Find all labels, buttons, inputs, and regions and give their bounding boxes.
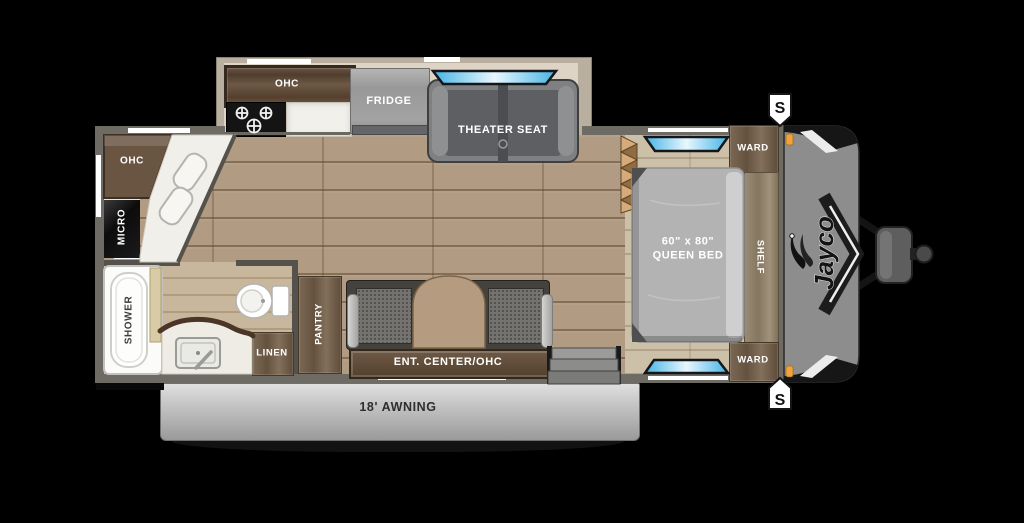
bed-size-label: 60" x 80" <box>653 235 724 249</box>
linen-label: LINEN <box>256 348 288 359</box>
marker-light-bottom <box>786 366 793 377</box>
awning-label: 18' AWNING <box>359 400 436 414</box>
s-marker-bottom-label: S <box>775 392 786 409</box>
entry-steps <box>547 346 621 384</box>
ward-bottom-label: WARD <box>737 355 768 366</box>
ent-center-label: ENT. CENTER/OHC <box>394 356 503 368</box>
shower-label: SHOWER <box>124 296 135 345</box>
theater-window <box>433 71 556 84</box>
marker-light-top <box>786 134 793 145</box>
micro-label: MICRO <box>117 209 128 245</box>
bedroom-window-top <box>645 137 728 151</box>
bed-type-label: QUEEN BED <box>653 249 724 263</box>
fridge-label: FRIDGE <box>366 95 411 107</box>
jayco-logo: Jayco <box>809 216 839 290</box>
ward-top-label: WARD <box>737 143 768 154</box>
galley-ohc-label: OHC <box>120 156 144 167</box>
bedroom-window-bottom <box>645 360 728 373</box>
pantry-label: PANTRY <box>314 303 325 345</box>
queen-bed-label: 60" x 80" QUEEN BED <box>653 235 724 264</box>
stove-burners <box>237 108 272 133</box>
theater-seat-label: THEATER SEAT <box>458 124 548 136</box>
s-marker-top-label: S <box>775 100 786 117</box>
bath-vanity <box>160 319 253 374</box>
ent-center-arch <box>413 276 485 348</box>
toilet <box>236 284 289 318</box>
floorplan-canvas: Jayco S S OHC FRIDGE THEATER SEAT OHC MI… <box>0 0 1024 523</box>
hitch-ball <box>916 246 933 263</box>
shelf-label: SHELF <box>755 240 766 274</box>
s-marker-top: S <box>769 94 791 126</box>
propane-cover <box>876 227 933 283</box>
front-cap: Jayco <box>784 126 859 382</box>
kitchen-ohc-label: OHC <box>275 79 299 90</box>
theater-seat <box>428 80 578 162</box>
galley-ohc-highlight <box>104 135 172 146</box>
